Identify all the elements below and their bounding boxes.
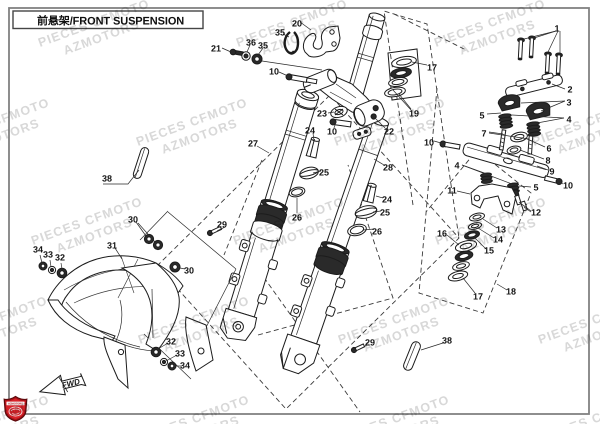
svg-text:24: 24 — [305, 126, 315, 136]
svg-text:6: 6 — [546, 144, 551, 154]
svg-text:2: 2 — [567, 85, 572, 95]
svg-text:25: 25 — [319, 168, 329, 178]
svg-text:5: 5 — [479, 111, 484, 121]
svg-text:26: 26 — [372, 227, 382, 237]
svg-text:10: 10 — [269, 67, 279, 77]
svg-text:11: 11 — [447, 186, 457, 196]
svg-text:33: 33 — [43, 250, 53, 260]
svg-text:31: 31 — [107, 241, 117, 251]
svg-text:9: 9 — [549, 167, 554, 177]
svg-text:10: 10 — [563, 181, 573, 191]
svg-text:24: 24 — [382, 195, 392, 205]
svg-text:17: 17 — [473, 292, 483, 302]
svg-text:17: 17 — [427, 63, 437, 73]
svg-text:10: 10 — [424, 138, 434, 148]
svg-text:29: 29 — [217, 220, 227, 230]
svg-text:27: 27 — [248, 139, 258, 149]
svg-text:28: 28 — [383, 163, 393, 173]
svg-text:7: 7 — [481, 129, 486, 139]
svg-text:4: 4 — [454, 161, 459, 171]
svg-text:30: 30 — [184, 266, 194, 276]
svg-text:21: 21 — [211, 44, 221, 54]
svg-text:23: 23 — [317, 109, 327, 119]
svg-text:5: 5 — [533, 183, 538, 193]
svg-text:38: 38 — [102, 174, 112, 184]
svg-text:1: 1 — [554, 24, 559, 34]
svg-text:3: 3 — [566, 98, 571, 108]
svg-text:18: 18 — [506, 287, 516, 297]
svg-text:34: 34 — [180, 361, 190, 371]
svg-text:38: 38 — [442, 336, 452, 346]
svg-text:25: 25 — [380, 208, 390, 218]
svg-text:8: 8 — [545, 156, 550, 166]
